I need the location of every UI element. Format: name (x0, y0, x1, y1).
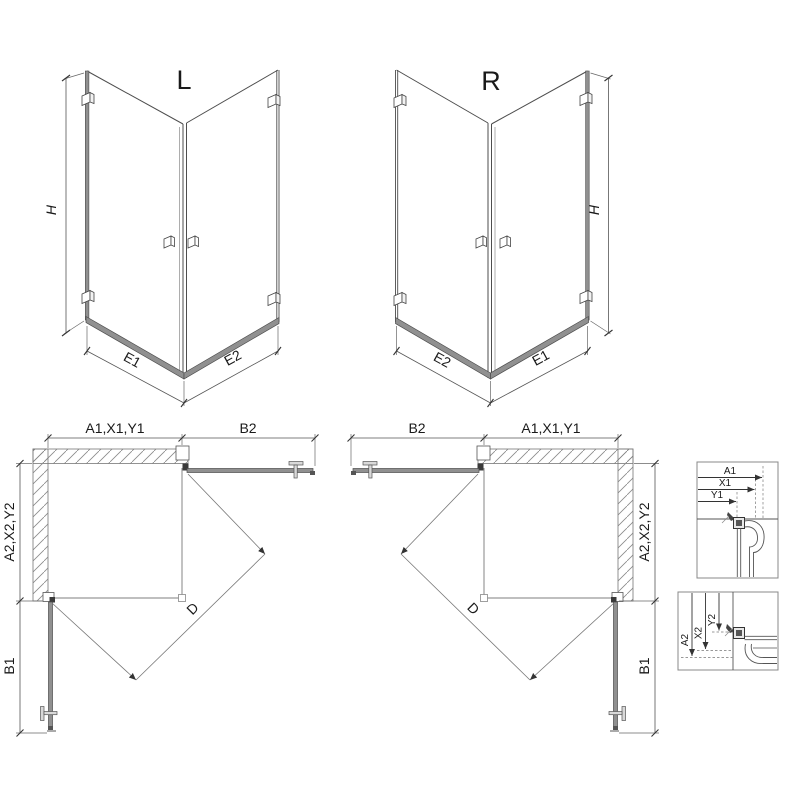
door-knob-icon (188, 236, 199, 248)
door-knob-icon (476, 236, 487, 248)
dim-label-diagonal: D (183, 599, 201, 617)
door-panel-b1 (49, 602, 53, 728)
dim-label-height: H (586, 204, 602, 215)
technical-drawing-sheet: H E1 E2 L H (0, 0, 800, 800)
dim-label-y2: Y2 (707, 613, 718, 626)
wall-section (33, 449, 48, 601)
dim-label-x2: X2 (694, 626, 705, 639)
door-handle (363, 462, 377, 466)
dim-label-depth: A2,X2,Y2 (636, 502, 652, 561)
wall-section (478, 449, 633, 464)
dim-label-depth: A2,X2,Y2 (1, 502, 17, 561)
wall-profile-bar (586, 71, 590, 320)
dim-label-b1: B1 (636, 657, 652, 674)
dim-label-b2: B2 (239, 420, 256, 436)
detail-view-horizontal-section: A1 X1 Y1 (697, 462, 778, 578)
plan-view-left-variant: A1,X1,Y1 B2 A2,X2,Y2 B1 D (1, 420, 319, 737)
dim-label-x1: X1 (719, 478, 732, 489)
plan-view-right-variant: B2 A1,X1,Y1 A2,X2,Y2 B1 D (348, 420, 660, 737)
door-knob-icon (164, 236, 175, 248)
door-handle (289, 462, 303, 466)
iso-view-left-variant: H E1 E2 L (43, 65, 281, 407)
wall-section (33, 449, 188, 464)
door-handle (41, 707, 45, 721)
variant-label-l: L (176, 65, 191, 95)
dim-label-y1: Y1 (711, 490, 724, 501)
door-panel-b1 (614, 602, 618, 728)
hinge-icon (268, 293, 280, 306)
hinge-icon (268, 95, 280, 108)
dim-label-width: A1,X1,Y1 (85, 420, 144, 436)
drawing-svg: H E1 E2 L H (0, 0, 800, 800)
dim-label-height: H (43, 204, 59, 215)
dim-label-diagonal: D (464, 599, 482, 617)
bottom-rail (491, 317, 589, 380)
dim-label-b1: B1 (1, 657, 17, 674)
door-handle (622, 707, 626, 721)
door-knob-icon (500, 236, 511, 248)
door-pivot-block (176, 446, 189, 460)
dim-label-a1: A1 (724, 466, 737, 477)
door-pivot-block (477, 446, 490, 460)
variant-label-r: R (481, 66, 501, 96)
iso-view-right-variant: H E2 E1 R (394, 66, 613, 407)
wall-section (618, 449, 633, 601)
bottom-rail (396, 318, 491, 380)
dim-label-b2: B2 (408, 420, 425, 436)
dim-label-width: A1,X1,Y1 (521, 420, 580, 436)
detail-view-vertical-section: A2 X2 Y2 (678, 592, 778, 670)
dim-label-a2: A2 (680, 633, 691, 646)
wall-profile-bar (85, 71, 89, 320)
